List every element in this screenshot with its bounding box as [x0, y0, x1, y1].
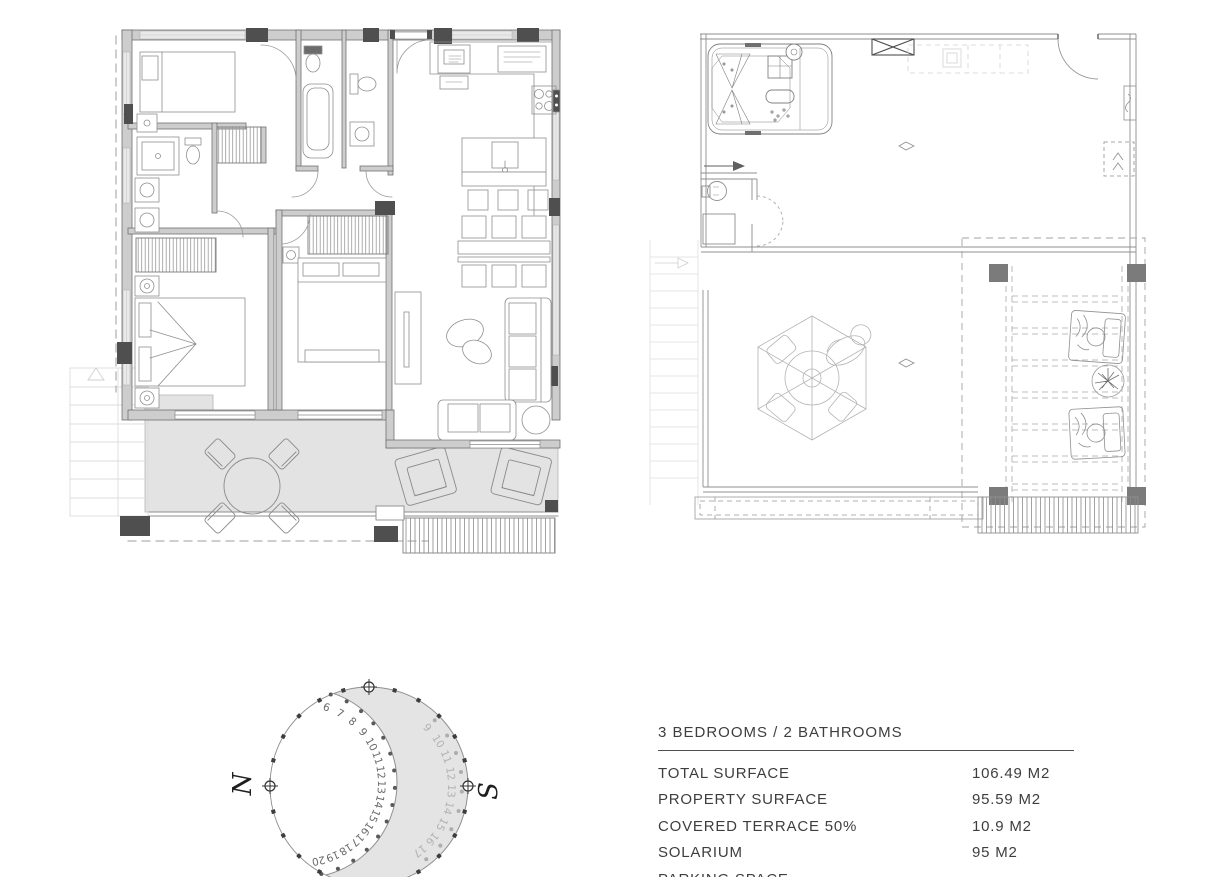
spec-row: PARKING SPACE: [658, 866, 1074, 877]
chair: [522, 216, 546, 238]
compass-outer-hour-dot: [457, 809, 461, 813]
kitchen: [397, 40, 560, 215]
loveseat: [438, 400, 516, 440]
level-mark: [899, 142, 914, 150]
bathtub: [303, 84, 333, 158]
sun-compass: 6789101112131415161718192091011121314151…: [207, 679, 504, 877]
solarium-floor-plan: [650, 34, 1146, 533]
gazebo-lounger: [819, 321, 878, 371]
compass-inner-hour-dot: [329, 693, 333, 697]
bathroom-b: [350, 74, 392, 197]
socket: [553, 90, 560, 112]
spec-row-label: COVERED TERRACE 50%: [658, 818, 972, 835]
compass-inner-hour-dot: [390, 803, 394, 807]
compass-outer-hour-dot: [454, 751, 458, 755]
living-room: [395, 292, 551, 440]
sofa: [505, 298, 551, 402]
bedroom3: [137, 52, 235, 132]
compass-inner-hour-dot: [345, 699, 349, 703]
kitchen-island: [462, 138, 548, 210]
chair: [492, 216, 516, 238]
compass-inner-hour-dot: [392, 769, 396, 773]
compass-outer-hour-dot: [424, 857, 428, 861]
spec-table-rows: TOTAL SURFACE106.49 M2PROPERTY SURFACE95…: [658, 760, 1074, 877]
compass-outer-hour-dot: [460, 790, 464, 794]
pergola: [962, 238, 1146, 527]
compass-north-label: N: [228, 771, 258, 796]
chair: [492, 265, 516, 287]
solarium-wc: [702, 182, 783, 247]
section-marker: [1104, 142, 1134, 176]
stool: [498, 190, 518, 210]
entry-arrow: [704, 161, 745, 171]
spec-row-value: 95 M2: [972, 844, 1074, 861]
compass-inner-hour-dot: [359, 709, 363, 713]
chair: [462, 265, 486, 287]
level-mark: [899, 359, 914, 367]
faint-counter: [908, 45, 1028, 73]
wc-shower: [703, 214, 735, 244]
bedroom1: [135, 276, 245, 408]
spec-row-value: 95.59 M2: [972, 791, 1074, 808]
spec-row-value: 10.9 M2: [972, 818, 1074, 835]
compass-inner-hour-dot: [393, 786, 397, 790]
apartment-floor-plan: [70, 28, 560, 553]
appliance-label: [498, 46, 546, 72]
compass-inner-hour-label: 13: [375, 780, 388, 794]
spec-row: COVERED TERRACE 50%10.9 M2: [658, 813, 1074, 840]
dining-set: [458, 216, 550, 287]
spec-row: PROPERTY SURFACE95.59 M2: [658, 787, 1074, 814]
compass-outer-hour-dot: [433, 718, 437, 722]
nightstand: [283, 247, 299, 263]
spec-row: TOTAL SURFACE106.49 M2: [658, 760, 1074, 787]
dining-table: [458, 241, 550, 254]
terrace-stairs: [403, 518, 555, 553]
compass-outer-hour-dot: [445, 734, 449, 738]
toilet-tank: [185, 138, 201, 145]
compass-inner-hour-dot: [371, 721, 375, 725]
sun-lounger: [1068, 310, 1125, 364]
spec-row-value: 106.49 M2: [972, 765, 1074, 782]
solarium-stairs: [978, 497, 1138, 533]
compass-inner-hour-dot: [376, 835, 380, 839]
jacuzzi: [708, 43, 832, 135]
solarium-exterior-stair: [650, 240, 698, 505]
compass-outer-hour-dot: [438, 844, 442, 848]
compass-inner-hour-dot: [388, 752, 392, 756]
spec-row: SOLARIUM95 M2: [658, 840, 1074, 867]
compass-inner-hour-dot: [385, 819, 389, 823]
compass-south-label: S: [474, 782, 504, 800]
chair: [462, 216, 486, 238]
solarium-walls: [700, 34, 1136, 493]
compass-outer-hour-label: 12: [443, 766, 457, 781]
pergola-posts: [989, 264, 1146, 505]
toilet-bowl: [187, 146, 200, 164]
compass-inner-hour-dot: [336, 867, 340, 871]
compass-outer-hour-dot: [449, 827, 453, 831]
solarium-planter: [695, 497, 983, 519]
sun-lounger: [1069, 407, 1126, 460]
sink: [135, 208, 159, 232]
spec-row-label: PROPERTY SURFACE: [658, 791, 972, 808]
stool: [528, 190, 548, 210]
gazebo-set: [758, 316, 879, 440]
spec-row-label: PARKING SPACE: [658, 871, 972, 877]
compass-inner-hour-dot: [351, 859, 355, 863]
compass-inner-hour-label: 12: [373, 765, 387, 780]
spec-row-label: TOTAL SURFACE: [658, 765, 972, 782]
sink: [350, 122, 374, 146]
spec-table-header: 3 BEDROOMS / 2 BATHROOMS: [658, 724, 1074, 751]
compass-outer-hour-label: 13: [444, 784, 457, 798]
jacuzzi-ladder: [786, 44, 802, 60]
compass-outer-hour-dot: [459, 770, 463, 774]
compass-inner-hour-dot: [381, 736, 385, 740]
spec-row-label: SOLARIUM: [658, 844, 972, 861]
chair: [522, 265, 546, 287]
compass-inner-hour-dot: [365, 848, 369, 852]
sink: [135, 178, 159, 202]
stool: [468, 190, 488, 210]
side-table: [522, 406, 550, 434]
breakfast-bar: [462, 172, 546, 186]
floor-plan-sheet: 6789101112131415161718192091011121314151…: [0, 0, 1221, 877]
spec-table: 3 BEDROOMS / 2 BATHROOMS TOTAL SURFACE10…: [658, 724, 1074, 877]
